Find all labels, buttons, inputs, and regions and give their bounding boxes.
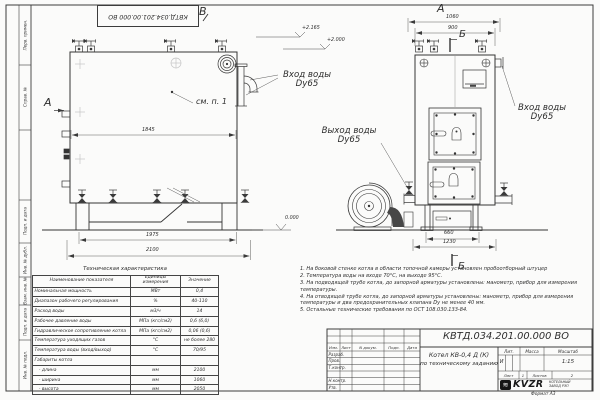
tb-col-data: Дата [404,345,420,350]
tb-row-label: Т.контр. [329,365,346,370]
spec-cell: МПа (кгс/см2) [131,326,181,336]
inlet-water-label-front: Вход воды Dy65 [504,104,580,122]
spec-cell: 0,4 [181,287,219,297]
dim-1845: 1845 [142,128,155,133]
spec-cell: мм [131,375,181,385]
view-label-a-side: А [44,97,52,109]
spec-table-title: Техническая характеристика [32,266,218,272]
tb-title-line2: по техническому заданию [420,361,498,367]
format-label: Формат А3 [531,392,555,397]
tb-row-label: Утв. [329,385,337,390]
spec-row: Диапазон рабочего регулирования%40-110 [33,297,219,307]
spec-cell: % [131,297,181,307]
inlet-front-dn: Dy65 [504,113,580,122]
tb-col-dokum: N докум. [352,345,384,350]
spec-cell: 1060 [181,375,219,385]
top-doc-number: КВТД.034.201.00.000 ВО [98,6,198,26]
tb-sheet-label: Лист [498,373,519,378]
spec-row: Рабочее давление водыМПа (кгс/см2)0,6 (6… [33,316,219,326]
spec-cell: 70/95 [181,346,219,356]
spec-row: - высотамм2050 [33,385,219,395]
spec-cell: 2100 [181,365,219,375]
spec-cell: - ширина [33,375,131,385]
dim-2100: 2100 [146,248,159,253]
logo-text: KVZR [513,379,544,390]
technical-notes: 1. На боковой стенке котла в области топ… [300,266,591,314]
tb-col-list: Лист [340,345,352,350]
spec-header-units: Единицы измерения [131,275,181,287]
note-item: 3. На подводящей трубе котла, до запорно… [300,280,591,293]
tb-lit-value: И [498,359,505,365]
elevation-2165: +2.165 [302,26,320,31]
section-label-b-top: Б [459,30,466,41]
spec-cell: °С [131,336,181,346]
spec-cell: - длина [33,365,131,375]
logo-icon: ≋ [500,380,511,391]
frame-side-label: Подп. и дата [23,308,28,336]
logo-sub-line2: ЗАВОД РЭП [549,384,570,388]
spec-row: - длинамм2100 [33,365,219,375]
note-item: 5. Остальные технические требования по О… [300,307,591,314]
elevation-2000: +2.000 [327,38,345,43]
spec-cell: Рабочее давление воды [33,316,131,326]
tb-row-label: Пров. [329,358,341,363]
frame-side-label: Взам. инв. № [23,277,28,305]
spec-row: Габариты котла [33,356,219,366]
tb-sheet-value: 1 [519,373,527,378]
tb-sheets-label: Листов [527,373,552,378]
dim-1060: 1060 [446,15,459,20]
spec-header-row: Наименование показателя Единицы измерени… [33,275,219,287]
tb-mass-header: Масса [520,349,544,354]
spec-cell: МВт [131,287,181,297]
spec-cell: Габариты котла [33,356,131,366]
frame-side-label: Справ. № [23,87,28,107]
tb-row-label: Н.контр. [329,378,347,383]
spec-cell: мм [131,385,181,395]
spec-cell: Расход воды [33,307,131,317]
tb-lit-header: Лит. [498,349,520,354]
spec-row: Номинальная мощностьМВт0,4 [33,287,219,297]
dim-1975: 1975 [146,233,159,238]
spec-cell: 0,6 (6,0) [181,316,219,326]
title-block-doc-number: КВТД.034.201.00.000 ВО [420,331,592,342]
see-note-label: см. п. 1 [196,98,227,106]
spec-cell: Номинальная мощность [33,287,131,297]
spec-cell: мм [131,365,181,375]
drawing-sheet: КВТД.034.201.00.000 ВО А В А Б Б см. п. … [0,0,600,400]
frame-side-label: Подп. и дата [23,207,28,235]
inlet-side-dn: Dy65 [274,80,340,89]
tb-title-line1: Котел КВ-0,4 Д (К) [420,352,498,359]
spec-cell: °С [131,346,181,356]
frame-side-label: Инв. № дубл. [23,246,28,274]
logo-subtext: КОТЕЛЬНЫЙ ЗАВОД РЭП [549,380,570,389]
spec-cell: Диапазон рабочего регулирования [33,297,131,307]
spec-table-block: Техническая характеристика Наименование … [32,266,218,395]
view-label-a-front: А [437,3,445,15]
spec-cell: МПа (кгс/см2) [131,316,181,326]
dim-900: 900 [448,26,458,31]
spec-cell: 0,06 (0,6) [181,326,219,336]
spec-cell: 14 [181,307,219,317]
spec-cell: - высота [33,385,131,395]
spec-row: Гидравлическое сопротивление котлаМПа (к… [33,326,219,336]
spec-cell [131,356,181,366]
spec-cell: Температура уходящих газов [33,336,131,346]
outlet-dn: Dy65 [315,136,383,145]
spec-table: Наименование показателя Единицы измерени… [32,275,219,396]
top-doc-number-stamp: КВТД.034.201.00.000 ВО [97,5,199,27]
frame-side-label: Перв. примен. [23,20,28,51]
spec-cell: Гидравлическое сопротивление котла [33,326,131,336]
outlet-water-label: Выход воды Dy65 [315,127,383,145]
note-item: 1. На боковой стенке котла в области топ… [300,266,591,273]
inlet-water-label-side: Вход воды Dy65 [274,71,340,89]
elevation-marks [256,32,330,49]
spec-header-value: Значение [181,275,219,287]
spec-cell: 40-110 [181,297,219,307]
spec-row: Температура воды (вход/выход)°С70/95 [33,346,219,356]
spec-cell: 2050 [181,385,219,395]
tb-row-label: Разраб. [329,352,345,357]
tb-col-podp: Подп. [384,345,404,350]
view-label-v: В [199,6,207,18]
tb-sheets-value: 2 [552,373,592,378]
elevation-zero: 0.000 [285,216,299,221]
tb-scale-header: Масштаб [544,349,592,354]
spec-cell: не более 280 [181,336,219,346]
side-view [42,14,291,260]
spec-cell: Температура воды (вход/выход) [33,346,131,356]
spec-cell [181,356,219,366]
tb-col-izm: Изм. [327,345,340,350]
spec-row: - ширинамм1060 [33,375,219,385]
dim-660: 660 [444,231,454,236]
spec-header-name: Наименование показателя [33,275,131,287]
note-item: 2. Температура воды на входе 70°С, на вы… [300,273,591,280]
note-item: 4. На отводящей трубе котла, до запорной… [300,294,591,307]
spec-row: Температура уходящих газов°Сне более 280 [33,336,219,346]
tb-scale-value: 1:15 [544,359,592,365]
frame-side-label: Инв. № подл. [23,351,28,379]
spec-cell: м3/ч [131,307,181,317]
dim-1230: 1230 [443,240,456,245]
spec-row: Расход водым3/ч14 [33,307,219,317]
